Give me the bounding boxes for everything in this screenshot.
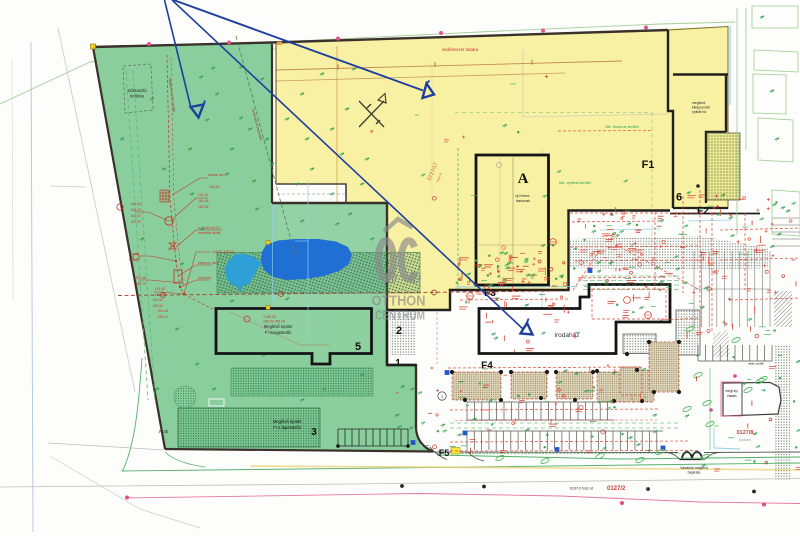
svg-text:nyitott fúr.: nyitott fúr.	[692, 110, 707, 114]
svg-text:kiképzendő: kiképzendő	[692, 106, 710, 110]
svg-text:területe: területe	[130, 94, 145, 99]
svg-text:CENTRUM: CENTRUM	[375, 308, 425, 323]
svg-text:Me. építési terület: Me. építési terület	[559, 180, 592, 185]
svg-text:6: 6	[676, 192, 682, 204]
svg-text:tolózár akn: tolózár akn	[208, 173, 225, 177]
svg-text:a jó fúrt kút-24: a jó fúrt kút-24	[198, 226, 220, 230]
svg-text:Meglévő épület: Meglévő épület	[264, 324, 293, 329]
svg-text:F5: F5	[439, 448, 450, 458]
svg-text:Vásárt.: Vásárt.	[727, 394, 738, 398]
svg-text:160,52: 160,52	[131, 220, 141, 224]
svg-text:148,50 148,20: 148,50 148,20	[212, 250, 234, 254]
svg-text:védőövezet határa: védőövezet határa	[442, 47, 479, 52]
svg-text:.P 40: .P 40	[158, 429, 169, 434]
svg-text:személyi aknái: személyi aknái	[198, 231, 220, 235]
svg-text:161,67: 161,67	[131, 214, 141, 218]
svg-text:megl.ép.: megl.ép.	[725, 389, 738, 393]
svg-text:rtanszak: rtanszak	[516, 199, 530, 203]
svg-text:6137-2 hrsz út: 6137-2 hrsz út	[570, 487, 593, 491]
svg-text:bejárata: bejárata	[688, 471, 701, 475]
svg-text:+158,78: +158,78	[263, 315, 275, 319]
svg-text:146,10: 146,10	[209, 185, 219, 189]
svg-text:161,62: 161,62	[131, 202, 141, 206]
svg-text:meglévő,: meglévő,	[692, 101, 706, 105]
svg-text:Meglévő épület: Meglévő épület	[273, 419, 302, 424]
svg-text:5: 5	[355, 341, 361, 353]
svg-text:Me. Buenos terület: Me. Buenos terület	[605, 124, 639, 129]
svg-text:F+magastetős: F+magastetős	[265, 330, 292, 335]
svg-text:akác sorfák: akác sorfák	[748, 362, 764, 366]
svg-text:F4: F4	[481, 361, 493, 372]
svg-text:F3: F3	[484, 288, 496, 299]
svg-text:151,45: 151,45	[158, 309, 168, 313]
svg-text:irodaház: irodaház	[555, 332, 580, 339]
svg-text:új Keme-: új Keme-	[515, 194, 531, 198]
svg-text:1: 1	[395, 358, 401, 369]
svg-text:0127/8: 0127/8	[737, 430, 754, 436]
svg-text:szikkasztó: szikkasztó	[127, 88, 147, 93]
svg-text:fúrott kút: fúrott kút	[198, 276, 211, 280]
svg-text:150,41: 150,41	[158, 315, 168, 319]
svg-text:szennyv. akn: szennyv. akn	[198, 261, 218, 265]
svg-text:151,64: 151,64	[153, 298, 163, 302]
svg-text:161,10: 161,10	[198, 193, 208, 197]
svg-text:F+1 lapostetős: F+1 lapostetős	[273, 425, 301, 430]
svg-text:3: 3	[311, 427, 317, 438]
svg-text:F2: F2	[697, 206, 709, 217]
svg-text:158,78 158,78: 158,78 158,78	[263, 320, 285, 324]
svg-text:162,28: 162,28	[198, 205, 208, 209]
svg-text:160,48: 160,48	[198, 199, 208, 203]
svg-text:150,40: 150,40	[155, 293, 165, 297]
svg-text:151,42: 151,42	[155, 287, 165, 291]
svg-text:F1: F1	[642, 159, 655, 171]
svg-text:160,42: 160,42	[131, 208, 141, 212]
svg-text:150,70: 150,70	[136, 282, 146, 286]
svg-text:(udvar): (udvar)	[739, 438, 752, 442]
svg-text:A: A	[518, 171, 529, 187]
svg-text:150,62: 150,62	[153, 304, 163, 308]
svg-text:0127/2: 0127/2	[607, 486, 626, 492]
svg-text:2: 2	[396, 325, 402, 337]
svg-text:151,48: 151,48	[136, 276, 146, 280]
